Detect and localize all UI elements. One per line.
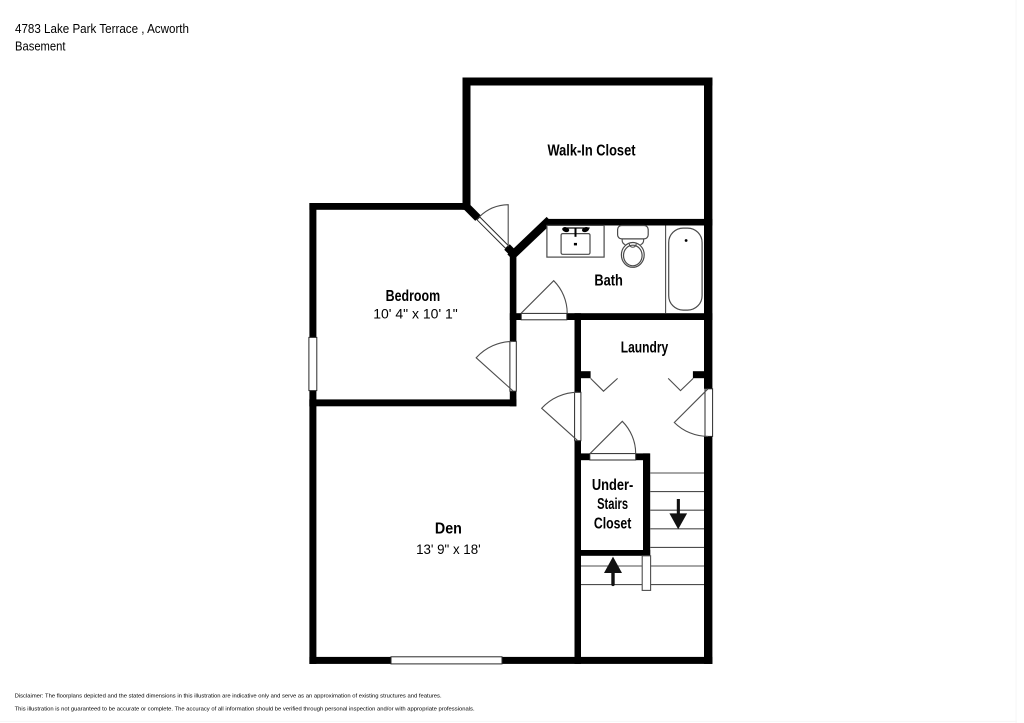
svg-text:Den: Den: [435, 520, 462, 537]
svg-text:Under-: Under-: [592, 477, 634, 494]
svg-text:This illustration is not guara: This illustration is not guaranteed to b…: [15, 706, 475, 712]
svg-text:Disclaimer: The floorplans dep: Disclaimer: The floorplans depicted and …: [15, 694, 442, 700]
svg-text:Stairs: Stairs: [597, 496, 628, 513]
svg-text:Bedroom: Bedroom: [386, 288, 441, 305]
svg-text:Laundry: Laundry: [621, 339, 669, 356]
svg-text:Closet: Closet: [594, 516, 632, 533]
svg-text:Walk-In Closet: Walk-In Closet: [548, 142, 636, 159]
svg-text:4783 Lake Park Terrace , Acwor: 4783 Lake Park Terrace , Acworth: [15, 21, 189, 36]
svg-text:Basement: Basement: [15, 39, 66, 54]
svg-text:10' 4" x 10' 1": 10' 4" x 10' 1": [373, 307, 458, 323]
svg-text:Bath: Bath: [594, 273, 623, 290]
svg-text:13' 9" x 18': 13' 9" x 18': [416, 542, 481, 558]
